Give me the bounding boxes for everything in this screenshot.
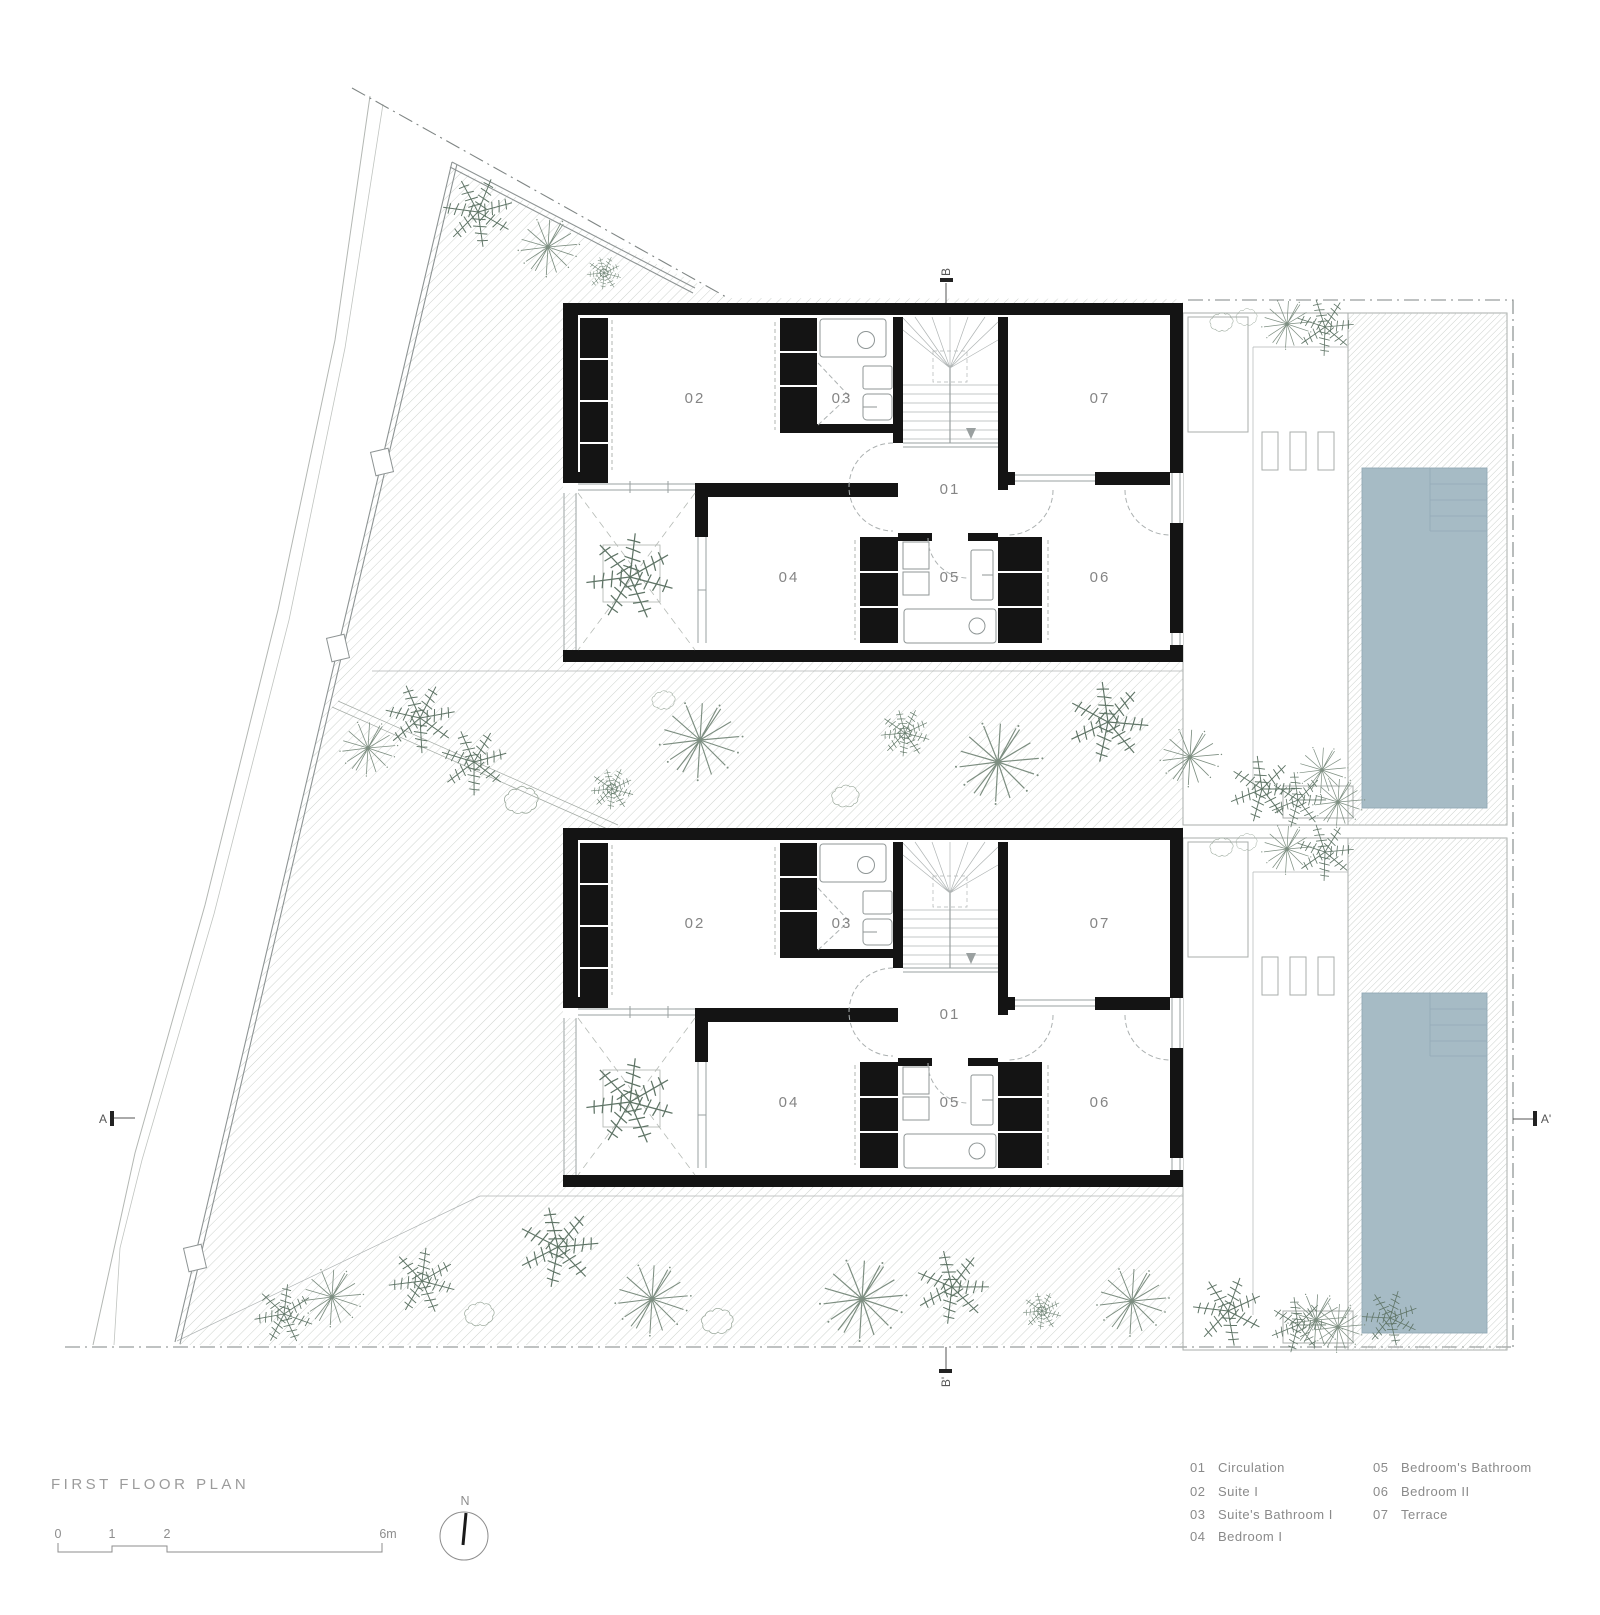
legend-label: Suite I bbox=[1218, 1484, 1258, 1499]
north-label: N bbox=[460, 1494, 469, 1508]
legend-num: 03 bbox=[1190, 1507, 1205, 1522]
sheet-title: FIRST FLOOR PLAN bbox=[51, 1476, 249, 1493]
legend-num: 05 bbox=[1373, 1460, 1388, 1475]
legend: 01 Circulation 02 Suite I 03 Suite's Bat… bbox=[1190, 1460, 1532, 1544]
legend-label: Circulation bbox=[1218, 1460, 1285, 1475]
scale-tick-1: 1 bbox=[109, 1527, 116, 1541]
section-marker-a-prime: A' bbox=[1513, 1111, 1551, 1126]
section-marker-b-prime: B' bbox=[939, 1347, 953, 1387]
legend-num: 01 bbox=[1190, 1460, 1205, 1475]
section-label-a-prime: A' bbox=[1541, 1112, 1551, 1126]
scale-tick-0: 0 bbox=[55, 1527, 62, 1541]
drawing-sheet: 02 03 07 01 04 05 06 bbox=[0, 0, 1600, 1615]
legend-label: Bedroom II bbox=[1401, 1484, 1470, 1499]
legend-label: Bedroom's Bathroom bbox=[1401, 1460, 1532, 1475]
legend-num: 02 bbox=[1190, 1484, 1205, 1499]
legend-num: 06 bbox=[1373, 1484, 1388, 1499]
section-label-a: A bbox=[99, 1112, 107, 1126]
scale-tick-6m: 6m bbox=[379, 1527, 396, 1541]
legend-label: Suite's Bathroom I bbox=[1218, 1507, 1333, 1522]
section-label-b-prime: B' bbox=[939, 1377, 953, 1387]
scale-tick-2: 2 bbox=[164, 1527, 171, 1541]
section-marker-b: B bbox=[939, 268, 953, 303]
section-label-b: B bbox=[939, 268, 953, 276]
north-arrow: N bbox=[440, 1494, 488, 1560]
legend-label: Bedroom I bbox=[1218, 1529, 1282, 1544]
scale-bar: 0 1 2 6m bbox=[55, 1527, 397, 1552]
legend-num: 07 bbox=[1373, 1507, 1388, 1522]
legend-num: 04 bbox=[1190, 1529, 1205, 1544]
legend-label: Terrace bbox=[1401, 1507, 1448, 1522]
section-marker-a: A bbox=[99, 1111, 135, 1126]
floor-plan-drawing: 02 03 07 01 04 05 06 bbox=[0, 0, 1600, 1615]
